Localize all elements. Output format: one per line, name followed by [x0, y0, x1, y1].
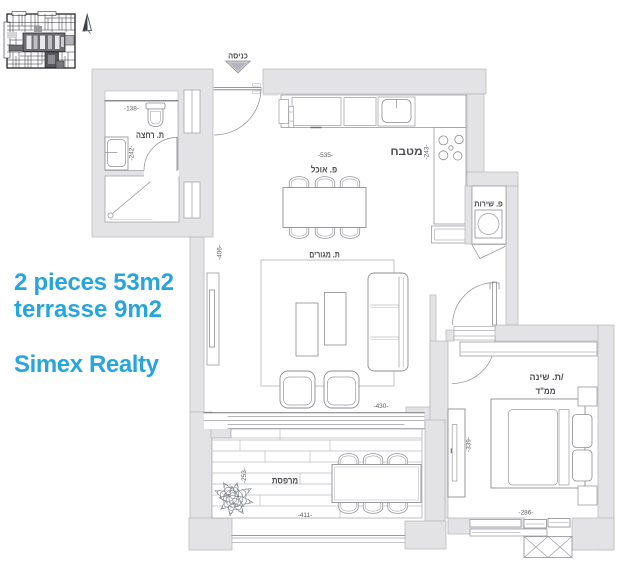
svg-text:פ. אוכל: פ. אוכל: [311, 164, 338, 175]
svg-text:-430-: -430-: [373, 403, 388, 410]
svg-text:כניסה: כניסה: [228, 51, 248, 61]
svg-text:-411-: -411-: [298, 512, 313, 519]
svg-text:Simex Realty: Simex Realty: [14, 351, 160, 378]
svg-text:פ. שירות: פ. שירות: [474, 199, 503, 209]
svg-text:מרפסת: מרפסת: [272, 475, 298, 486]
svg-text:ממ"ד: ממ"ד: [535, 386, 555, 397]
svg-text:-253-: -253-: [241, 468, 248, 483]
svg-text:-242-: -242-: [129, 145, 136, 160]
svg-text:2 pieces 53m2: 2 pieces 53m2: [14, 269, 174, 296]
svg-text:ת. רחצה: ת. רחצה: [136, 130, 164, 140]
svg-text:terrasse 9m2: terrasse 9m2: [14, 296, 162, 323]
svg-text:-138-: -138-: [124, 106, 139, 113]
svg-text:-535-: -535-: [318, 152, 333, 159]
svg-text:-339-: -339-: [466, 437, 473, 452]
svg-text:ת. מגורים: ת. מגורים: [309, 250, 340, 260]
svg-text:-243-: -243-: [424, 144, 431, 159]
svg-text:ת. שינה/: ת. שינה/: [530, 372, 564, 382]
svg-text:מטבח: מטבח: [390, 147, 422, 158]
svg-text:-406-: -406-: [217, 245, 224, 260]
svg-text:-286-: -286-: [518, 510, 533, 517]
